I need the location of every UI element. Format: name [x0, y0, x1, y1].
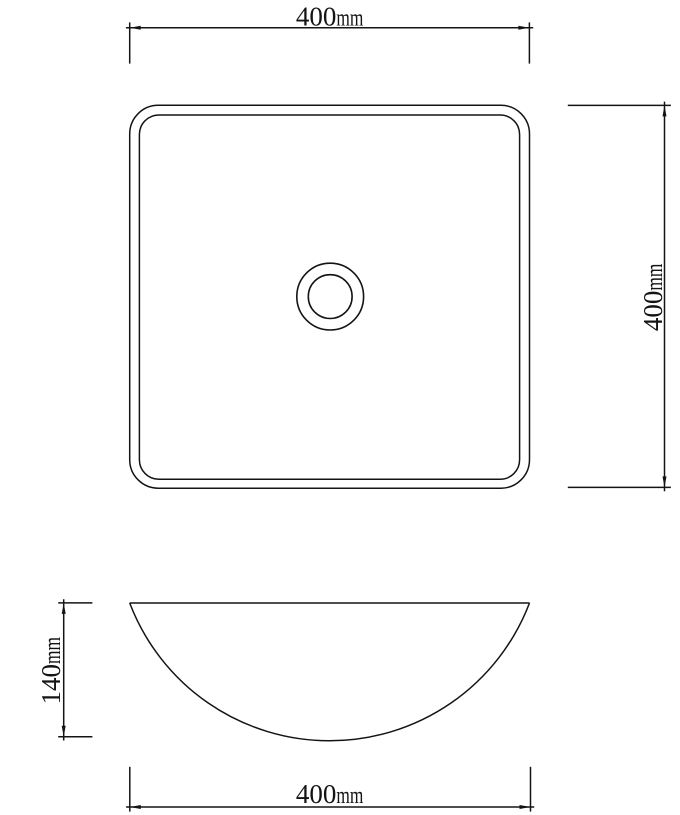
svg-text:400: 400: [296, 2, 337, 32]
svg-text:mm: mm: [336, 5, 363, 32]
svg-text:mm: mm: [39, 637, 66, 664]
svg-text:400: 400: [638, 291, 668, 332]
svg-text:140: 140: [36, 664, 66, 705]
svg-text:400: 400: [296, 779, 337, 809]
svg-text:mm: mm: [641, 264, 668, 291]
svg-text:mm: mm: [336, 782, 363, 809]
